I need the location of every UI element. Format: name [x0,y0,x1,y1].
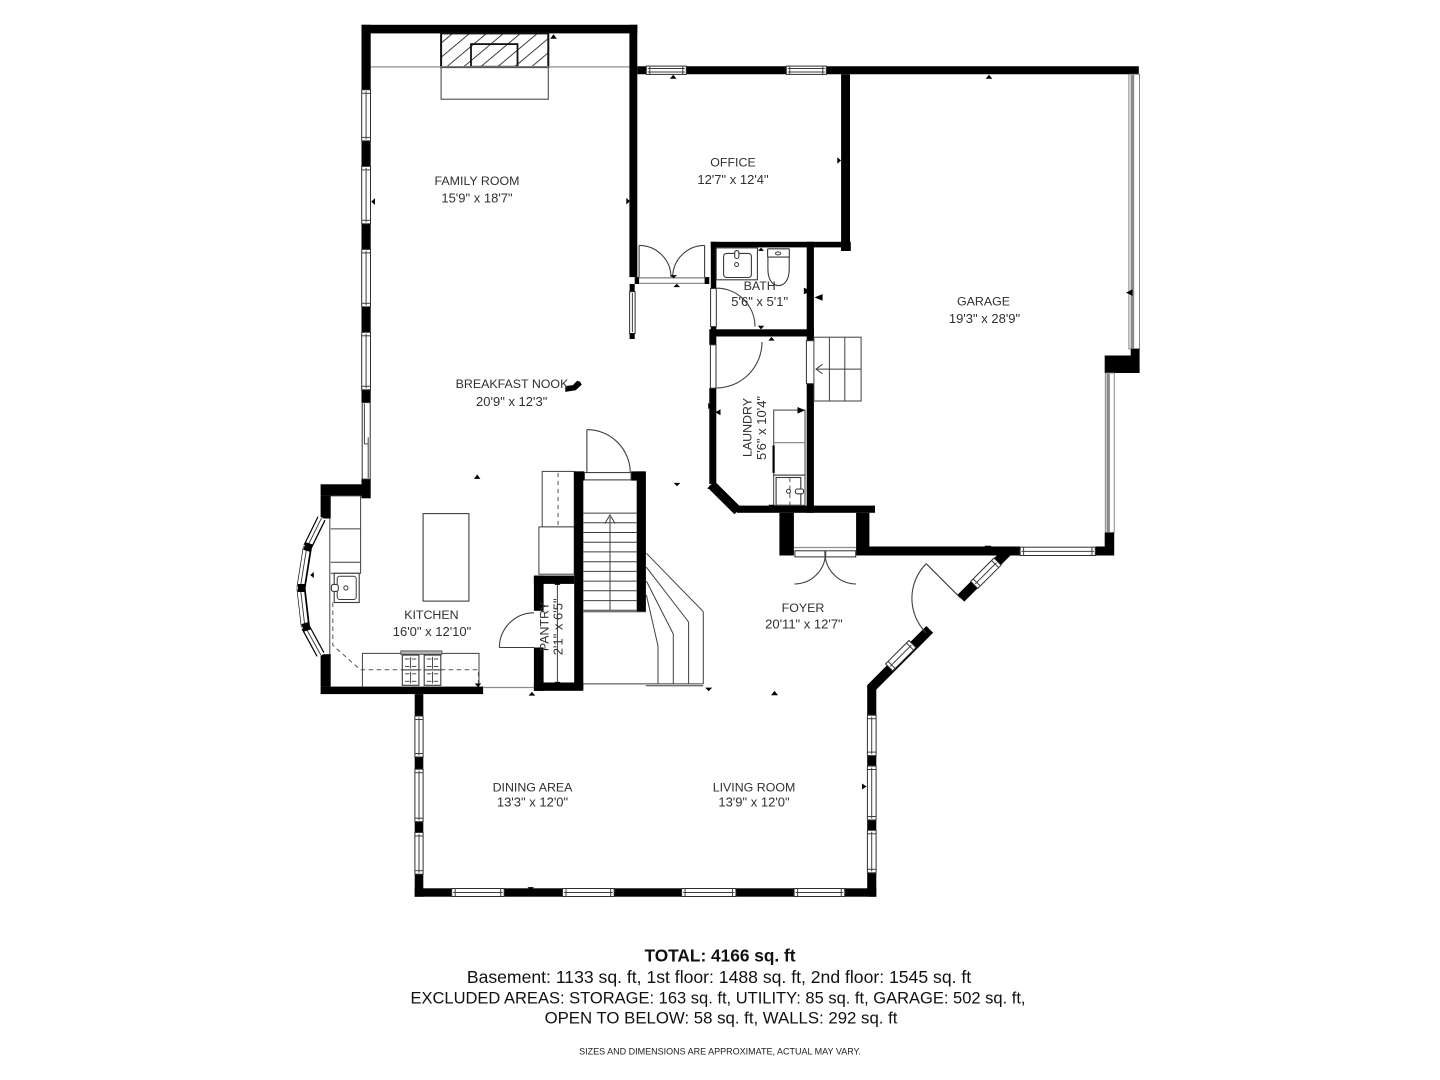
svg-text:5'6" x 5'1": 5'6" x 5'1" [731,294,788,309]
svg-text:13'9" x 12'0": 13'9" x 12'0" [718,795,790,810]
svg-text:FOYER: FOYER [782,601,825,615]
svg-text:EXCLUDED AREAS: STORAGE: 163 s: EXCLUDED AREAS: STORAGE: 163 sq. ft, UTI… [410,990,1025,1008]
svg-text:15'9" x 18'7": 15'9" x 18'7" [441,190,513,205]
svg-text:OFFICE: OFFICE [710,156,755,170]
svg-text:13'3" x 12'0": 13'3" x 12'0" [497,795,569,810]
svg-text:LAUNDRY: LAUNDRY [741,398,755,457]
svg-text:FAMILY ROOM: FAMILY ROOM [435,174,520,188]
svg-text:5'6" x 10'4": 5'6" x 10'4" [754,396,769,460]
svg-text:GARAGE: GARAGE [957,295,1010,309]
svg-text:PANTRY: PANTRY [537,602,551,651]
svg-text:BREAKFAST NOOK: BREAKFAST NOOK [456,377,569,391]
svg-text:16'0" x 12'10": 16'0" x 12'10" [393,624,472,639]
svg-text:20'9" x 12'3": 20'9" x 12'3" [476,394,548,409]
svg-text:LIVING ROOM: LIVING ROOM [713,781,796,795]
svg-text:BATH: BATH [744,279,776,293]
svg-text:19'3" x 28'9": 19'3" x 28'9" [949,311,1021,326]
svg-text:KITCHEN: KITCHEN [404,608,458,622]
svg-text:OPEN TO BELOW: 58 sq. ft, WALL: OPEN TO BELOW: 58 sq. ft, WALLS: 292 sq.… [545,1009,898,1028]
svg-text:12'7" x 12'4": 12'7" x 12'4" [697,172,769,187]
svg-text:20'11" x 12'7": 20'11" x 12'7" [765,617,843,632]
svg-text:DINING AREA: DINING AREA [493,781,574,795]
svg-text:Basement: 1133 sq. ft, 1st flo: Basement: 1133 sq. ft, 1st floor: 1488 s… [467,967,971,987]
svg-text:TOTAL: 4166 sq. ft: TOTAL: 4166 sq. ft [644,946,795,966]
svg-text:2'1" x 6'5": 2'1" x 6'5" [551,598,566,655]
svg-text:SIZES AND DIMENSIONS ARE APPRO: SIZES AND DIMENSIONS ARE APPROXIMATE, AC… [579,1047,861,1057]
